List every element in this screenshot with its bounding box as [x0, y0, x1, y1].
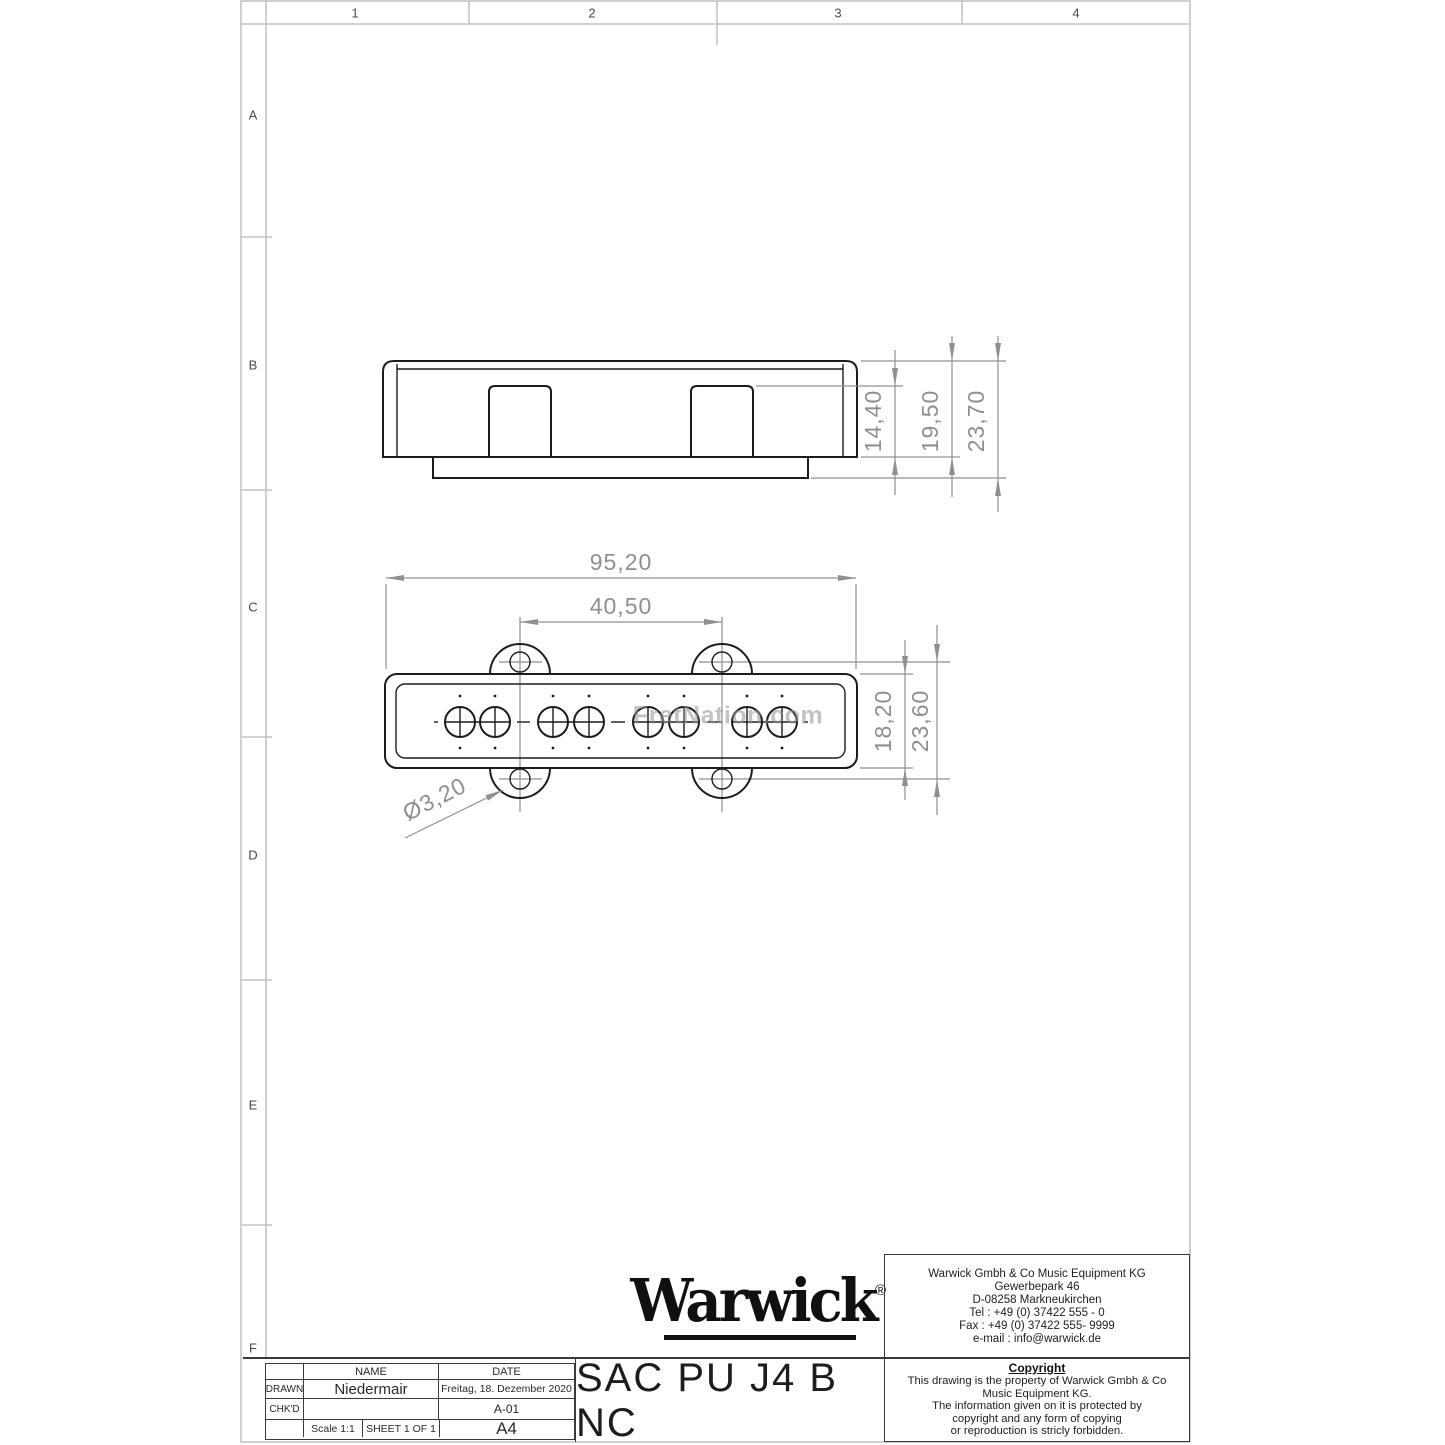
left-leg: [489, 386, 551, 457]
zone-row-e: E: [249, 1098, 258, 1113]
company-address-box: Warwick Gmbh & Co Music Equipment KG Gew…: [884, 1254, 1190, 1359]
zone-row-f: F: [249, 1341, 257, 1356]
company-line: e-mail : info@warwick.de: [973, 1333, 1101, 1346]
logo-underline: [664, 1335, 856, 1340]
copyright-line: Music Equipment KG.: [982, 1388, 1091, 1401]
title-block-table: NAME DATE DRAWN Niedermair Freitag, 18. …: [265, 1363, 575, 1440]
tb-bottom-empty: [266, 1420, 304, 1437]
dim-side-inner-height: 14,40: [860, 390, 886, 453]
drawing-title: SAC PU J4 B NC: [575, 1359, 884, 1442]
tb-scale: Scale 1:1: [304, 1420, 363, 1437]
tb-corner-empty: [266, 1364, 304, 1380]
logo-wordmark: Warwick: [630, 1256, 875, 1346]
bottom-flange: [433, 457, 808, 478]
zone-col-2: 2: [588, 6, 595, 21]
zone-col-3: 3: [834, 6, 841, 21]
copyright-line: The information given on it is protected…: [932, 1400, 1142, 1413]
warwick-logo: Warwick ®: [628, 1258, 878, 1354]
tb-name-header: NAME: [304, 1364, 439, 1380]
tb-drawn-date: Freitag, 18. Dezember 2020: [439, 1380, 574, 1399]
company-line: Warwick Gmbh & Co Music Equipment KG: [928, 1268, 1146, 1281]
tb-scale-sheet-cell: Scale 1:1 SHEET 1 OF 1: [304, 1420, 440, 1437]
zone-row-d: D: [248, 848, 257, 863]
company-line: D-08258 Markneukirchen: [972, 1294, 1101, 1307]
dim-ear-hole-span: 23,60: [907, 690, 933, 753]
zone-row-b: B: [249, 358, 258, 373]
company-line: Gewerbepark 46: [994, 1281, 1079, 1294]
tb-chkd-label: CHK'D: [266, 1399, 304, 1420]
company-line: Tel : +49 (0) 37422 555 - 0: [969, 1307, 1104, 1320]
dim-hole-spacing: 40,50: [590, 593, 653, 619]
copyright-line: copyright and any form of copying: [952, 1413, 1122, 1426]
copyright-line: or reproduction is stricly forbidden.: [951, 1425, 1124, 1438]
company-line: Fax : +49 (0) 37422 555- 9999: [959, 1320, 1115, 1333]
drawing-sheet: 14,40 19,50 23,70: [0, 0, 1445, 1445]
tb-chkd-name: [304, 1399, 439, 1420]
copyright-header: Copyright: [1009, 1362, 1066, 1375]
right-leg: [691, 386, 753, 457]
dim-overall-width: 95,20: [590, 549, 653, 575]
tb-drawn-name: Niedermair: [304, 1380, 439, 1399]
dim-body-width: 18,20: [870, 690, 896, 753]
watermark-text: FretNation.com: [633, 702, 823, 731]
copyright-line: This drawing is the property of Warwick …: [908, 1375, 1167, 1388]
tb-paper-size: A4: [439, 1420, 574, 1437]
dim-side-total-height: 23,70: [963, 390, 989, 453]
tb-date-header: DATE: [439, 1364, 574, 1380]
side-view-dimensions: 14,40 19,50 23,70: [756, 336, 1006, 512]
dim-hole-diameter: Ø3,20: [398, 772, 470, 826]
zone-row-c: C: [248, 600, 257, 615]
pickup-side-view: [383, 361, 857, 478]
dim-side-body-height: 19,50: [917, 390, 943, 453]
zone-col-4: 4: [1072, 6, 1079, 21]
zone-col-1: 1: [351, 6, 358, 21]
zone-row-a: A: [249, 108, 258, 123]
tb-drawn-label: DRAWN: [266, 1380, 304, 1399]
tb-sheet: SHEET 1 OF 1: [363, 1420, 439, 1437]
tb-revision: A-01: [439, 1399, 574, 1420]
copyright-box: Copyright This drawing is the property o…: [884, 1358, 1190, 1442]
